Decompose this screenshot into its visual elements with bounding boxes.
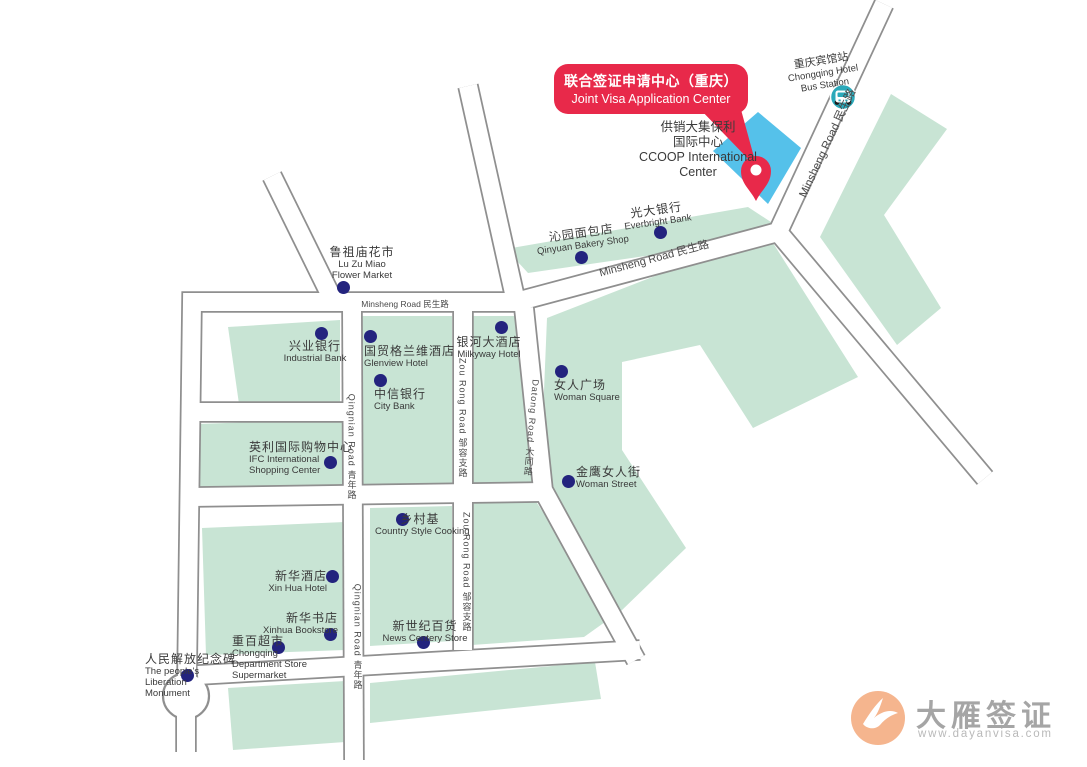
poi-label-ifc-shopping-center: 英利国际购物中心IFC InternationalShopping Center: [249, 440, 359, 476]
road-label-datong-road: Datong Road 大同路: [521, 379, 542, 477]
callout-title-zh: 联合签证申请中心（重庆）: [554, 71, 748, 91]
poi-dot-xinhua-hotel: [326, 570, 339, 583]
poi-dot-city-bank: [374, 374, 387, 387]
road-label-zourong-road-north: Zou Rong Road 邹容支路: [457, 358, 470, 478]
poi-label-country-style-cooking: 乡村基Country Style Cooking: [375, 512, 465, 537]
road-label-minsheng-road-west: Minsheng Road 民生路: [361, 298, 448, 310]
poi-label-woman-square: 女人广场Woman Square: [554, 378, 644, 403]
poi-label-xinhua-bookstore: 新华书店Xinhua Bookstore: [250, 611, 338, 636]
callout-title-en: Joint Visa Application Center: [554, 91, 748, 108]
ccoop-line-3: CCOOP International: [627, 150, 769, 165]
poi-label-xinhua-hotel: 新华酒店Xin Hua Hotel: [240, 569, 327, 594]
poi-dot-industrial-bank: [315, 327, 328, 340]
poi-label-city-bank: 中信银行City Bank: [374, 387, 464, 412]
ccoop-line-2: 国际中心: [627, 135, 769, 150]
poi-dot-flower-market: [337, 281, 350, 294]
ccoop-line-4: Center: [627, 165, 769, 180]
poi-label-chongqing-department-store: 重百超市ChongqingDepartment StoreSupermarket: [232, 634, 317, 681]
poi-label-woman-street: 金鹰女人街Woman Street: [576, 465, 666, 490]
poi-label-liberation-monument: 人民解放纪念碑The people'sLiberationMonument: [145, 652, 235, 699]
poi-dot-woman-street: [562, 475, 575, 488]
poi-dot-glenview-hotel: [364, 330, 377, 343]
poi-dot-milkyway-hotel: [495, 321, 508, 334]
poi-dot-woman-square: [555, 365, 568, 378]
visa-center-callout: 联合签证申请中心（重庆） Joint Visa Application Cent…: [554, 64, 748, 114]
poi-label-news-century-store: 新世纪百货News Centery Store: [380, 619, 470, 644]
poi-label-flower-market: 鲁祖庙花市Lu Zu MiaoFlower Market: [307, 245, 417, 281]
poi-label-industrial-bank: 兴业银行Industrial Bank: [260, 339, 370, 364]
poi-dot-qinyuan-bakery: [575, 251, 588, 264]
goose-icon: [848, 687, 908, 747]
dayan-visa-logo: 大雁签证 www.dayanvisa.com: [848, 687, 1078, 749]
ccoop-center-label: 供销大集保利 国际中心 CCOOP International Center: [627, 120, 769, 180]
ccoop-line-1: 供销大集保利: [627, 120, 769, 135]
visa-center-map: 鲁祖庙花市Lu Zu MiaoFlower Market兴业银行Industri…: [0, 0, 1087, 767]
poi-label-milkyway-hotel: 银河大酒店Milkyway Hotel: [439, 335, 539, 360]
road-label-minsheng-road-ne: Minsheng Road 民生路: [795, 86, 859, 200]
road-label-qingnian-road-south: Qingnian Road 青年路: [352, 584, 365, 691]
road-label-zourong-road-south: Zou Rong Road 邹容支路: [461, 512, 474, 632]
labels-layer: 鲁祖庙花市Lu Zu MiaoFlower Market兴业银行Industri…: [0, 0, 1087, 767]
logo-url: www.dayanvisa.com: [918, 728, 1053, 740]
road-label-qingnian-road-north: Qingnian Road 青年路: [346, 394, 359, 501]
